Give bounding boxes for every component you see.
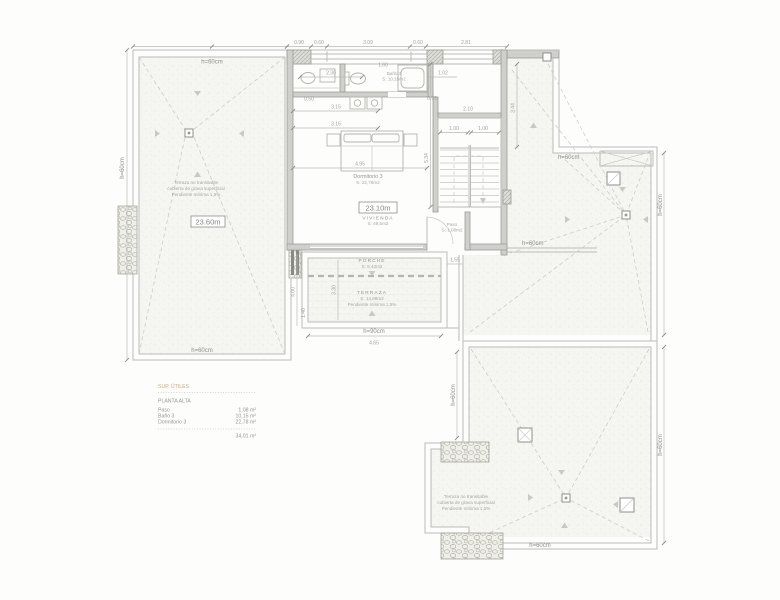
parapet-height-label: h=60cm bbox=[201, 60, 223, 66]
floor-plan: h=60cm h=60cm h=60cm Terraza no transita… bbox=[0, 0, 780, 600]
dim-label: 0.60 bbox=[314, 40, 324, 46]
dim-label: 1.00 bbox=[449, 126, 459, 132]
svg-text:Pendiente mínima 1,5%: Pendiente mínima 1,5% bbox=[172, 192, 221, 197]
floor-level-label: 23.10m bbox=[365, 204, 390, 213]
parapet-height-label: h=60cm bbox=[529, 543, 551, 549]
dim-label: 3.15 bbox=[331, 105, 341, 111]
drain-icon bbox=[543, 53, 551, 61]
sink-basin-icon bbox=[371, 100, 377, 106]
room-area-paso: S: 1,08m2 bbox=[442, 228, 463, 233]
bottom-right-terrace: Terraza no transitable cubierta de grava… bbox=[425, 341, 666, 559]
sink-basin-icon bbox=[354, 100, 360, 106]
bath-door-opening bbox=[388, 92, 406, 97]
svg-text:cubierta de grava superficial: cubierta de grava superficial bbox=[167, 186, 224, 191]
gravel-strip bbox=[441, 442, 489, 462]
legend: SUP. ÚTILES PLANTA ALTA Paso 1,08 m² Bañ… bbox=[158, 383, 256, 440]
svg-text:Terraza no transitable: Terraza no transitable bbox=[174, 180, 219, 185]
gravel-strip bbox=[441, 533, 503, 559]
parapet-height-label: h=60cm bbox=[658, 434, 664, 456]
dim-label: 3.15 bbox=[331, 122, 341, 128]
legend-room-name: Dormitorio 3 bbox=[158, 420, 186, 426]
room-area-porche: S: 9,43m2 bbox=[362, 264, 383, 269]
toilet-tank-icon bbox=[345, 72, 349, 85]
dim-label: 2.10 bbox=[463, 107, 473, 113]
bath-partition bbox=[293, 92, 433, 97]
dim-label: 1.55 bbox=[450, 258, 460, 264]
pillow-icon bbox=[372, 134, 399, 142]
dim-label: 2.30 bbox=[326, 71, 336, 77]
partition bbox=[340, 64, 345, 92]
dim-label: 3.30 bbox=[332, 285, 338, 295]
svg-text:cubierta de grava superficial: cubierta de grava superficial bbox=[437, 500, 494, 505]
legend-floor-title: PLANTA ALTA bbox=[158, 399, 191, 405]
room-note-terraza: Pendiente mínima 1,5% bbox=[348, 302, 397, 307]
stair-wall bbox=[433, 97, 438, 212]
drain-core-icon bbox=[565, 497, 568, 500]
parapet-height-label: h=90cm bbox=[363, 329, 385, 335]
parapet-height-label: h=60cm bbox=[658, 194, 664, 216]
dim-label: 3.44 bbox=[511, 103, 517, 113]
room-area-terraza: S: 14,86m2 bbox=[360, 296, 384, 301]
parapet-height-label: h=60cm bbox=[522, 241, 544, 247]
dim-label: 1.00 bbox=[478, 126, 488, 132]
legend-room-area: 22,78 m² bbox=[236, 420, 257, 426]
dim-label: 5.34 bbox=[424, 153, 430, 163]
east-wall bbox=[501, 50, 507, 255]
dim-label: 3.09 bbox=[363, 40, 373, 46]
dim-label: 4.95 bbox=[355, 162, 365, 168]
walkline-arrow-icon bbox=[480, 198, 486, 204]
nightstand-icon bbox=[404, 134, 417, 146]
wall-pier bbox=[427, 50, 443, 64]
drain-core-icon bbox=[188, 132, 191, 135]
pillow-icon bbox=[344, 134, 371, 142]
svg-text:Pendiente mínima 1,5%: Pendiente mínima 1,5% bbox=[442, 506, 491, 511]
toilet-icon bbox=[351, 73, 366, 84]
left-terrace-floor bbox=[139, 57, 285, 354]
nightstand-icon bbox=[327, 134, 340, 146]
parapet-height-label: h=60cm bbox=[558, 155, 580, 161]
dim-label: 0.50 bbox=[304, 97, 314, 103]
legend-row: Dormitorio 3 22,78 m² bbox=[158, 420, 256, 426]
parapet-height-label: h=60cm bbox=[120, 157, 126, 179]
chimney-icon bbox=[291, 248, 294, 275]
dim-label: 1.02 bbox=[438, 71, 448, 77]
dim-label: 0.90 bbox=[294, 40, 304, 46]
paso: Paso S: 1,08m2 bbox=[427, 217, 463, 244]
west-wall bbox=[287, 50, 293, 250]
south-wall bbox=[465, 244, 507, 250]
dim-label: 4.65 bbox=[369, 341, 379, 347]
paso-wall bbox=[465, 212, 470, 250]
left-terrace: h=60cm h=60cm h=60cm Terraza no transita… bbox=[118, 45, 291, 363]
gravel-strip bbox=[289, 246, 301, 278]
parapet-height-label: h=60cm bbox=[191, 348, 213, 354]
legend-header: SUP. ÚTILES bbox=[158, 383, 190, 390]
dim-label: 2.81 bbox=[461, 40, 471, 46]
room-area-bano: S: 10,15m2 bbox=[382, 77, 406, 82]
chimney-icon bbox=[296, 248, 299, 275]
window-band bbox=[311, 52, 493, 62]
washbasin-icon bbox=[301, 73, 315, 84]
terrace-note: Terraza no transitable cubierta de grava… bbox=[437, 494, 494, 511]
legend-total-area: 34,01 m² bbox=[236, 434, 257, 440]
svg-text:Terraza no transitable: Terraza no transitable bbox=[444, 494, 489, 499]
terrace-level-label: 23.60m bbox=[195, 218, 220, 227]
wall-pier bbox=[503, 190, 511, 204]
floor-plan-canvas: h=60cm h=60cm h=60cm Terraza no transita… bbox=[0, 0, 780, 600]
upper-right-terrace-floor bbox=[463, 58, 651, 335]
room-name-bano: Baño 3 bbox=[387, 71, 402, 76]
drain-core-icon bbox=[625, 214, 628, 217]
room-area-dormitorio: S: 22,78m2 bbox=[356, 180, 380, 185]
dim-label: 0.60 bbox=[413, 40, 423, 46]
room-area-vivienda: S: 49,5m2 bbox=[368, 221, 389, 226]
parapet-height-label: h=60cm bbox=[451, 384, 457, 406]
gravel-strip bbox=[118, 206, 137, 274]
room-name-paso: Paso bbox=[447, 222, 458, 227]
porch: PORCHE S: 9,43m2 TERRAZA S: 14,86m2 Pend… bbox=[289, 246, 463, 347]
sink-icon bbox=[367, 97, 382, 109]
dim-label: 1.40 bbox=[301, 308, 307, 318]
left-terrace-note: Terraza no transitable cubierta de grava… bbox=[167, 180, 224, 197]
sink-icon bbox=[350, 97, 365, 109]
bedroom: Dormitorio 3 S: 22,78m2 23.10m VIVIENDA … bbox=[327, 131, 417, 226]
dim-label: 4.00 bbox=[291, 287, 297, 297]
dim-label: 1.60 bbox=[378, 63, 388, 69]
stair-landing-wall bbox=[438, 113, 501, 118]
dim-label: 0.93 bbox=[427, 96, 437, 102]
